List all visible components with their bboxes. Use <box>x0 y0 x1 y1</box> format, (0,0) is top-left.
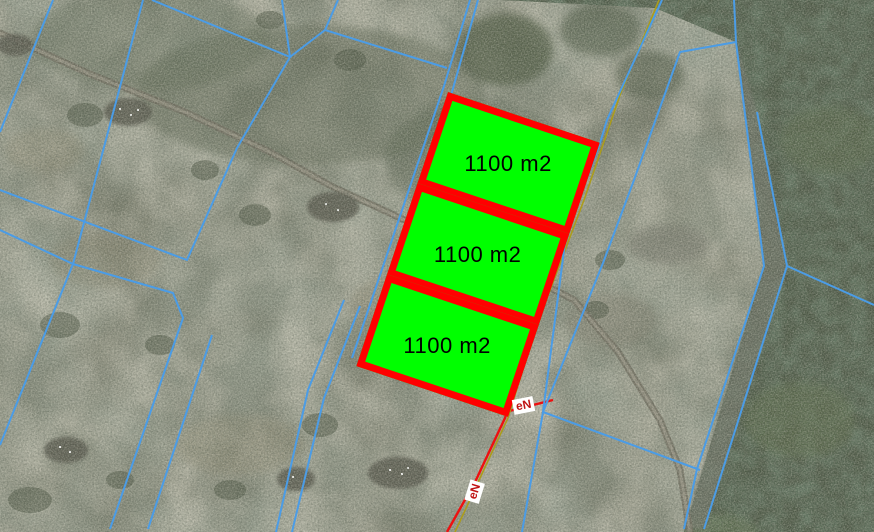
cadastral-boundary-line <box>0 0 53 132</box>
parcel-area-label: 1100 m2 <box>434 241 521 267</box>
cadastral-boundary-line <box>787 266 874 305</box>
cadastral-boundary-line <box>684 0 764 529</box>
cadastral-boundary-line <box>276 300 344 532</box>
map-viewport: 1100 m2 1100 m2 1100 m2 eN eN <box>0 0 874 532</box>
cadastral-boundary-line <box>522 412 543 532</box>
cadastral-boundary-line <box>543 42 736 412</box>
cadastral-boundary-line <box>325 30 447 68</box>
parcel-area-label: 1100 m2 <box>465 150 552 176</box>
cadastral-boundary-line <box>148 335 212 529</box>
cadastral-boundary-line <box>290 0 338 57</box>
cadastral-boundary-line <box>152 0 290 57</box>
parcel-area-label: 1100 m2 <box>404 332 491 358</box>
cadastral-boundary-line <box>543 412 700 470</box>
cadastral-boundary-line <box>0 0 143 445</box>
